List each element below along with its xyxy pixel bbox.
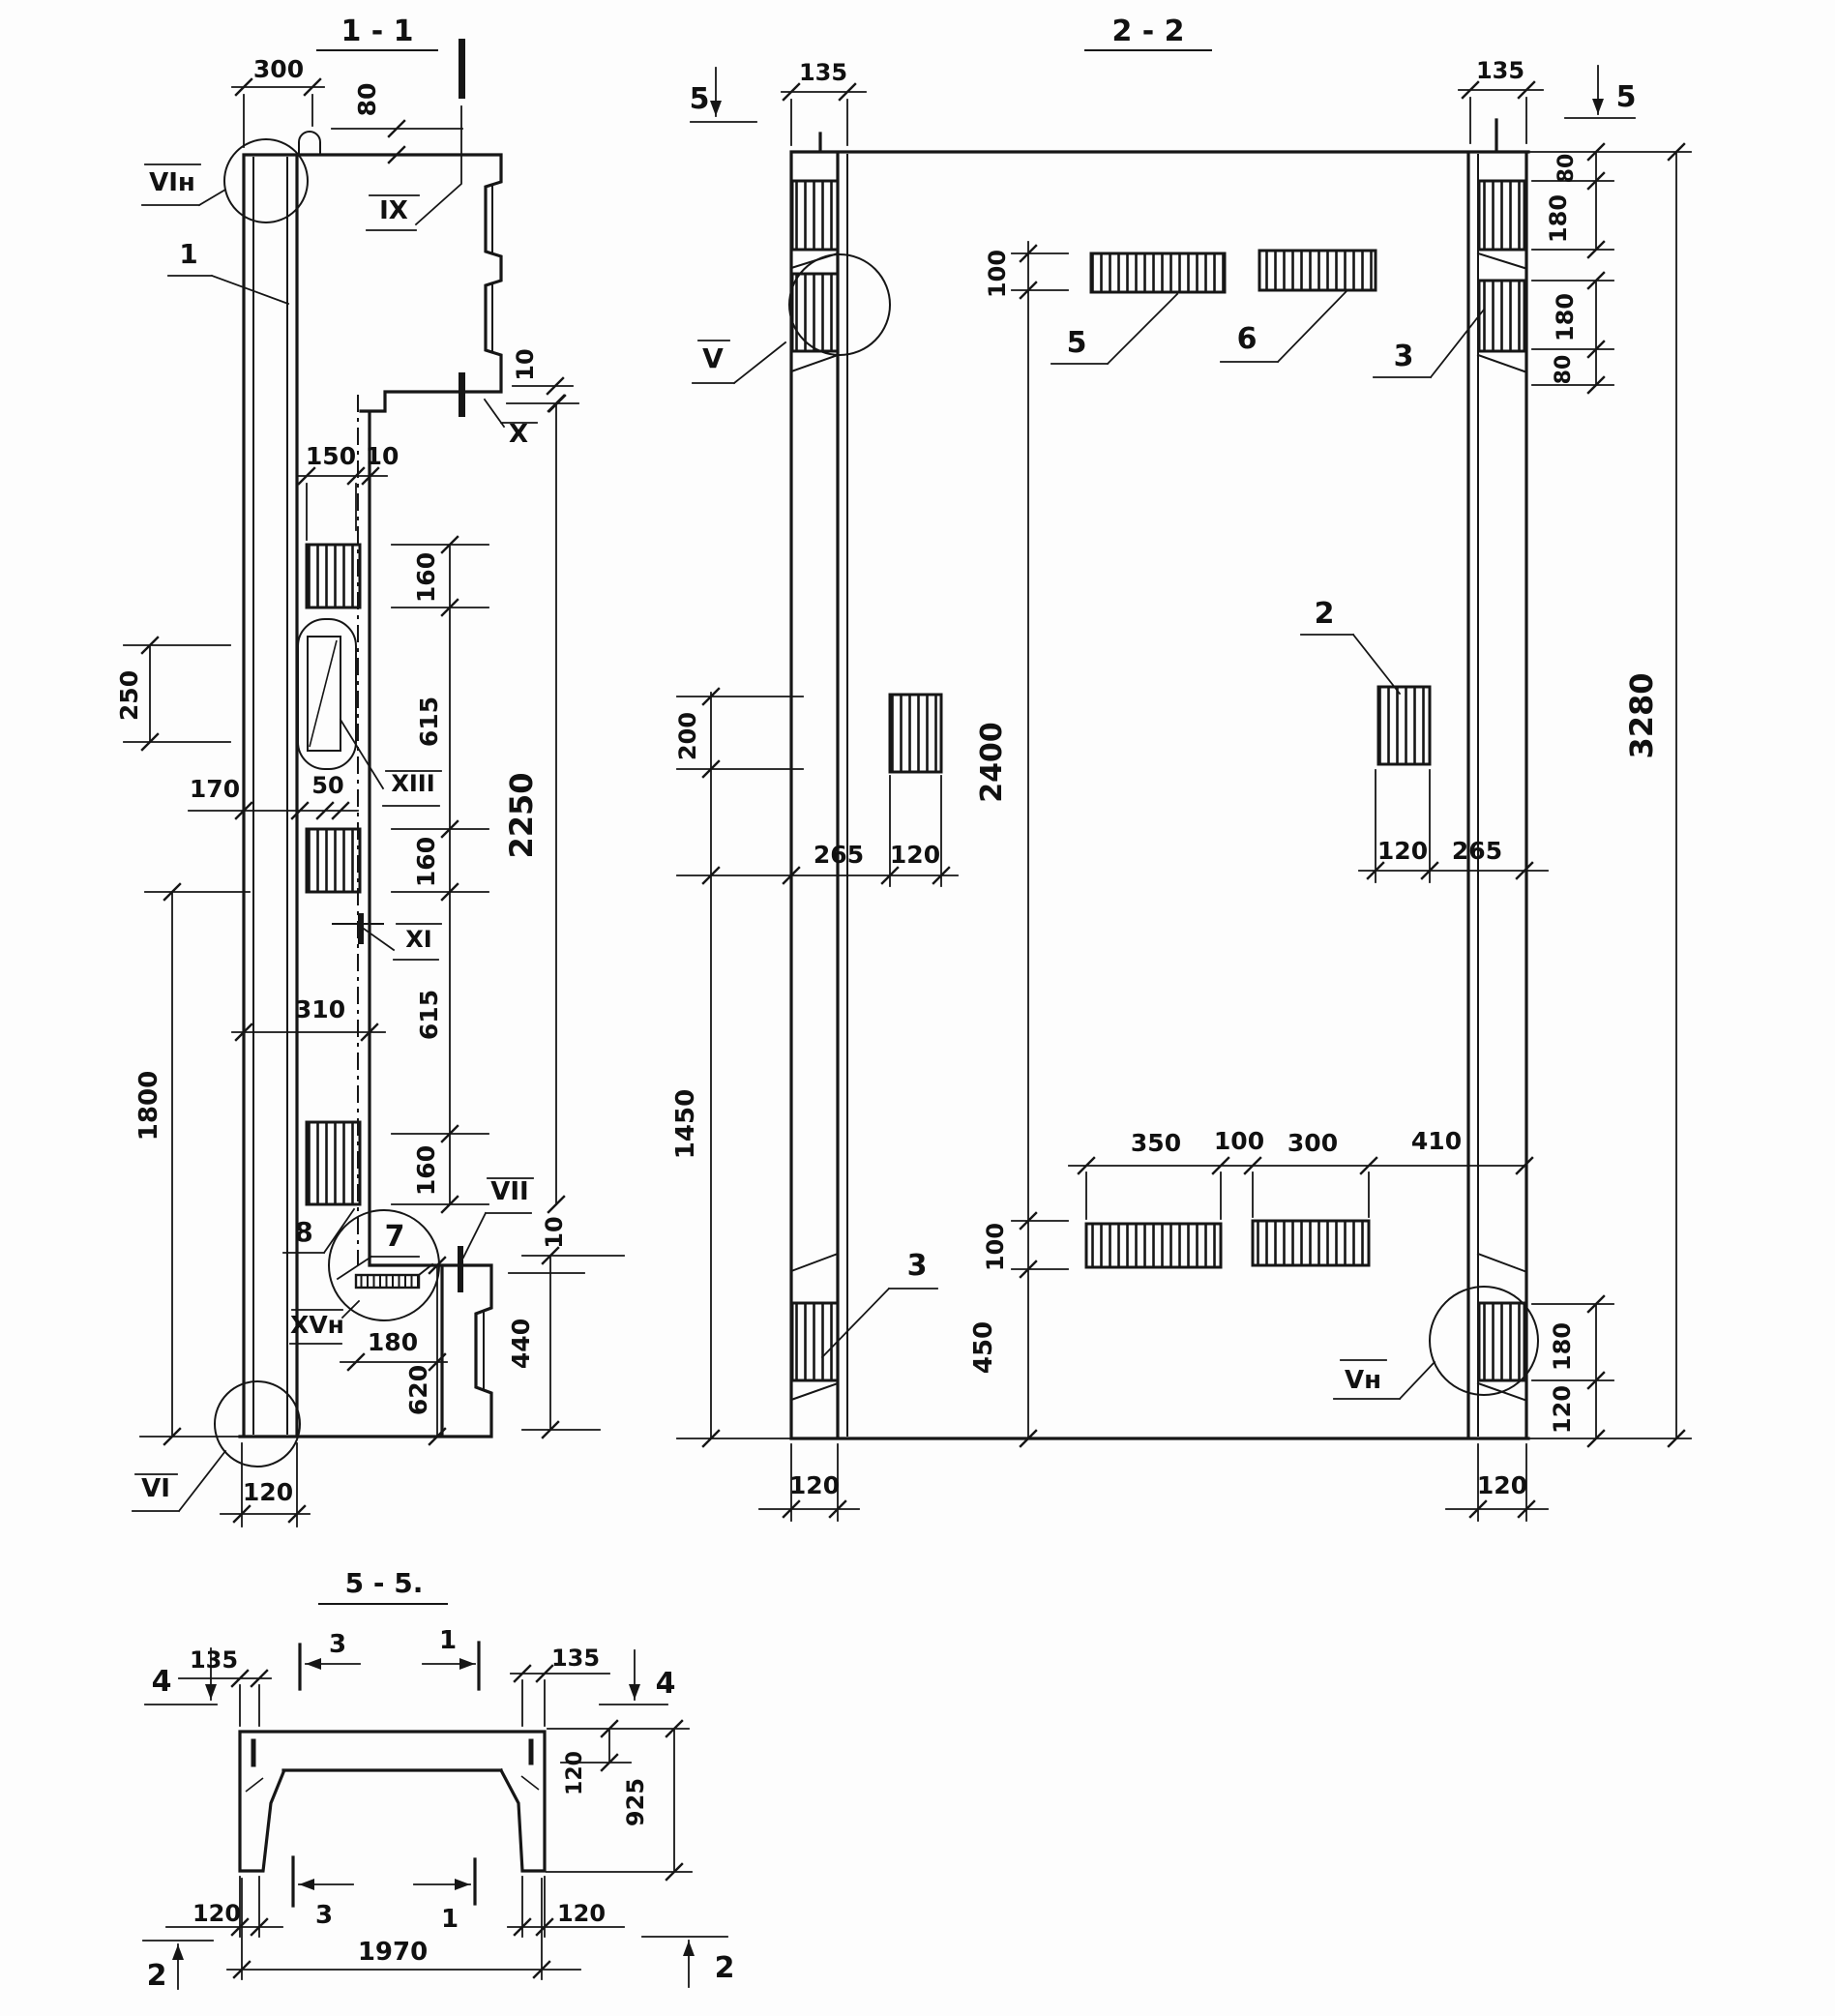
dim-50: 50 <box>311 772 343 799</box>
dim-160: 160 <box>412 1145 440 1196</box>
dim-200: 200 <box>674 712 701 760</box>
dim-620: 620 <box>404 1365 432 1415</box>
dim-160: 160 <box>412 552 440 603</box>
dim-135-right: 135 <box>1476 57 1524 84</box>
panel-inner-lines <box>253 132 492 1434</box>
rib-embed <box>792 181 838 250</box>
embed-plate <box>307 1122 360 1204</box>
channel-outline <box>240 1732 545 1871</box>
section-5-5: 5 - 5. 4 4 135 135 3 1 120 925 3 1 120 1… <box>143 1567 734 1993</box>
cut-marker-4-left: 4 <box>152 1665 172 1699</box>
dim-615: 615 <box>415 990 443 1040</box>
dim-2400: 2400 <box>975 722 1009 803</box>
dim-120-left: 120 <box>890 841 940 869</box>
part-3-left: 3 <box>907 1249 928 1283</box>
cut-marker-5-left: 5 <box>690 82 710 116</box>
haunch-lines <box>246 1776 539 1792</box>
mark-vii: VII <box>490 1177 528 1206</box>
section-2-2-title: 2 - 2 <box>1111 15 1184 48</box>
dim-10-top: 10 <box>512 348 539 380</box>
cut-marker-5-right: 5 <box>1616 80 1637 114</box>
mark-vi: VI <box>141 1474 170 1503</box>
dim-100-top: 100 <box>984 250 1011 298</box>
dim-lines-1-1 <box>124 79 624 1527</box>
mark-ix: IX <box>379 196 408 225</box>
dim-120-right: 120 <box>1377 837 1428 865</box>
cut-mark-vii <box>458 1246 463 1292</box>
dim-180: 180 <box>1545 194 1572 243</box>
mark-xi: XI <box>405 926 431 953</box>
dim-135-right: 135 <box>551 1645 600 1672</box>
dim-80: 80 <box>1552 355 1576 385</box>
dim-2250: 2250 <box>503 772 540 858</box>
leaders-1-1 <box>133 106 537 1511</box>
dim-10: 10 <box>366 442 400 470</box>
dim-120-bottom-right: 120 <box>1477 1471 1527 1499</box>
dim-80: 80 <box>1554 154 1579 184</box>
part-7: 7 <box>385 1220 405 1254</box>
mark-xiii: XIII <box>391 770 434 797</box>
cut-mark-ix <box>459 39 465 99</box>
dim-10-bottom: 10 <box>541 1216 568 1248</box>
dim-135-left: 135 <box>190 1646 238 1674</box>
part-6: 6 <box>1237 322 1258 356</box>
dim-410: 410 <box>1411 1127 1462 1155</box>
dim-1800: 1800 <box>134 1071 163 1141</box>
detail-circle-vi-n <box>224 139 308 222</box>
dim-180: 180 <box>1552 293 1579 341</box>
embed-bar <box>1253 1221 1369 1265</box>
cut-marker-2-left: 2 <box>147 1959 167 1993</box>
dim-300: 300 <box>1287 1129 1338 1157</box>
mark-vi-n: VIн <box>149 168 195 197</box>
dim-250: 250 <box>115 670 143 721</box>
dim-170: 170 <box>190 775 240 803</box>
mark-v-n: Vн <box>1345 1366 1381 1395</box>
section-1-1: 1 - 1 300 80 VIн <box>115 15 624 1527</box>
rib-embed <box>1479 1303 1524 1380</box>
section-5-5-title: 5 - 5. <box>345 1567 424 1599</box>
drawing-sheet: 1 - 1 300 80 VIн <box>0 0 1835 2016</box>
dim-180-bottom: 180 <box>1549 1322 1576 1371</box>
dim-120-bottom-left: 120 <box>192 1900 241 1927</box>
rib-embed <box>792 274 838 351</box>
dim-100-bottom: 100 <box>982 1223 1009 1271</box>
dim-80: 80 <box>353 83 381 117</box>
dim-300: 300 <box>253 55 304 83</box>
corner-weld-marks <box>253 1741 531 1764</box>
dim-450: 450 <box>969 1321 998 1374</box>
dim-1970: 1970 <box>358 1938 428 1967</box>
part-1: 1 <box>179 238 197 270</box>
dim-3280: 3280 <box>1623 672 1660 758</box>
mark-x: X <box>509 420 528 449</box>
dim-120-bottom-left: 120 <box>789 1471 840 1499</box>
embed-bar-5 <box>1091 253 1225 292</box>
dim-135-left: 135 <box>799 59 847 86</box>
section-2-2: 2 - 2 5 5 135 135 100 80 180 180 <box>671 15 1691 1521</box>
panel-outline <box>240 155 501 1437</box>
dim-120-bottom-right: 120 <box>557 1900 606 1927</box>
dim-120: 120 <box>243 1478 293 1506</box>
embed-block-2 <box>1378 687 1430 764</box>
rib-embed <box>1479 181 1524 250</box>
technical-drawing: 1 - 1 300 80 VIн <box>0 0 1835 2016</box>
dim-265-left: 265 <box>814 841 864 869</box>
dim-160: 160 <box>412 837 440 887</box>
slot-diagonal <box>310 640 337 747</box>
mark-xv-n: XVн <box>290 1311 344 1339</box>
dim-440: 440 <box>507 1319 535 1369</box>
cut-marker-4-right: 4 <box>656 1667 676 1701</box>
part-5: 5 <box>1067 326 1087 360</box>
dim-120-flange: 120 <box>563 1751 587 1795</box>
cut-marker-1-bottom: 1 <box>441 1905 459 1934</box>
dim-350: 350 <box>1131 1129 1181 1157</box>
base-plate <box>356 1275 419 1288</box>
dim-925: 925 <box>622 1778 649 1826</box>
cut-plane-bars <box>293 1643 479 1906</box>
dim-120-bottom: 120 <box>1549 1385 1576 1434</box>
cut-marker-1-top: 1 <box>439 1626 457 1655</box>
embed-block <box>890 695 941 772</box>
embed-bar <box>1086 1224 1221 1267</box>
dim-265-right: 265 <box>1452 837 1502 865</box>
cut-marker-3-bottom: 3 <box>315 1901 333 1930</box>
dim-615: 615 <box>415 697 443 747</box>
cut-marker-3-top: 3 <box>329 1630 346 1659</box>
embed-plate <box>307 829 360 892</box>
rib-embed <box>792 1303 838 1380</box>
dim-180: 180 <box>368 1328 418 1356</box>
part-8: 8 <box>294 1216 312 1248</box>
dim-310: 310 <box>295 995 345 1023</box>
dim-1450: 1450 <box>671 1089 700 1159</box>
rib-embed <box>1479 281 1524 351</box>
cut-mark-x <box>459 372 465 417</box>
dim-150: 150 <box>306 442 356 470</box>
part-2: 2 <box>1315 597 1335 631</box>
part-3-right: 3 <box>1394 340 1414 373</box>
cut-marker-2-right: 2 <box>715 1951 735 1985</box>
embed-bar-6 <box>1259 251 1376 290</box>
section-1-1-title: 1 - 1 <box>340 15 413 48</box>
embed-plate <box>307 545 360 608</box>
dim-100-mid: 100 <box>1214 1127 1264 1155</box>
mark-v: V <box>702 342 724 374</box>
